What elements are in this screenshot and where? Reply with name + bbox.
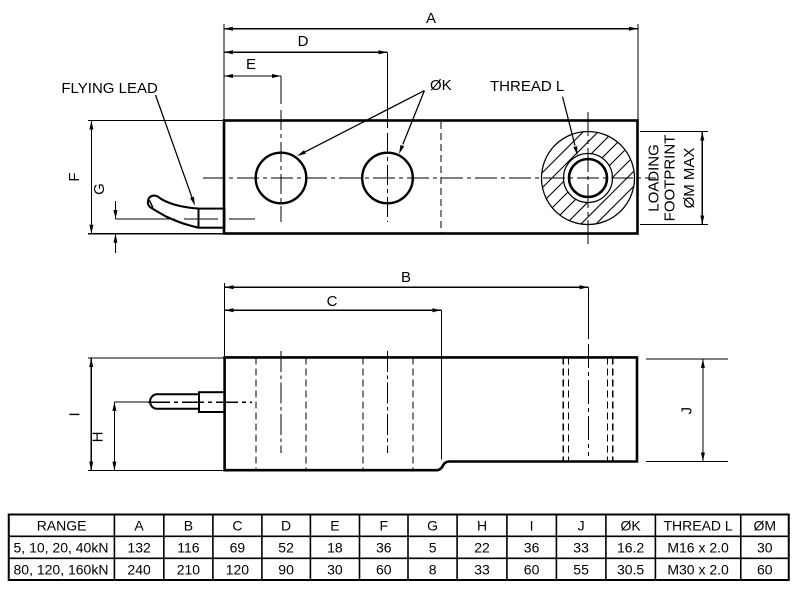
svg-text:116: 116: [177, 540, 200, 556]
svg-text:80, 120, 160kN: 80, 120, 160kN: [14, 562, 109, 578]
svg-text:36: 36: [376, 540, 392, 556]
svg-text:240: 240: [127, 562, 151, 578]
svg-text:J: J: [578, 518, 585, 534]
svg-text:FLYING LEAD: FLYING LEAD: [61, 80, 158, 97]
svg-text:30: 30: [327, 562, 343, 578]
svg-text:8: 8: [429, 562, 437, 578]
svg-text:FOOTPRINT: FOOTPRINT: [662, 135, 679, 222]
svg-text:36: 36: [524, 540, 540, 556]
svg-text:I: I: [530, 518, 534, 534]
svg-text:F: F: [380, 518, 389, 534]
svg-text:5: 5: [429, 540, 437, 556]
svg-text:60: 60: [524, 562, 540, 578]
svg-text:M16 x 2.0: M16 x 2.0: [667, 540, 729, 556]
svg-text:I: I: [67, 412, 84, 416]
svg-text:30: 30: [757, 540, 773, 556]
svg-text:C: C: [232, 518, 242, 534]
svg-text:A: A: [134, 518, 144, 534]
svg-text:33: 33: [573, 540, 589, 556]
svg-text:C: C: [327, 293, 338, 310]
svg-text:16.2: 16.2: [617, 540, 644, 556]
svg-text:H: H: [90, 432, 107, 443]
svg-text:60: 60: [376, 562, 392, 578]
svg-text:69: 69: [230, 540, 246, 556]
svg-text:90: 90: [278, 562, 294, 578]
svg-text:132: 132: [127, 540, 151, 556]
svg-text:55: 55: [573, 562, 589, 578]
svg-text:E: E: [246, 56, 256, 73]
svg-text:B: B: [184, 518, 193, 534]
svg-text:33: 33: [474, 562, 490, 578]
svg-text:LOADING: LOADING: [646, 144, 663, 212]
svg-text:A: A: [426, 10, 436, 27]
svg-text:ØK: ØK: [620, 518, 641, 534]
svg-text:D: D: [298, 33, 309, 50]
svg-text:THREAD L: THREAD L: [490, 78, 564, 95]
svg-text:5, 10, 20, 40kN: 5, 10, 20, 40kN: [14, 540, 109, 556]
svg-text:22: 22: [474, 540, 490, 556]
svg-text:120: 120: [226, 562, 250, 578]
svg-text:52: 52: [278, 540, 294, 556]
svg-text:E: E: [330, 518, 339, 534]
svg-text:60: 60: [757, 562, 773, 578]
svg-text:G: G: [91, 183, 108, 195]
svg-text:RANGE: RANGE: [37, 518, 87, 534]
svg-text:THREAD L: THREAD L: [663, 518, 732, 534]
svg-text:ØM: ØM: [754, 518, 777, 534]
svg-text:210: 210: [177, 562, 201, 578]
svg-text:M30 x 2.0: M30 x 2.0: [667, 562, 729, 578]
svg-text:F: F: [66, 172, 83, 181]
svg-text:D: D: [281, 518, 291, 534]
svg-text:H: H: [477, 518, 487, 534]
svg-text:J: J: [679, 407, 696, 415]
svg-text:30.5: 30.5: [617, 562, 644, 578]
svg-text:G: G: [427, 518, 438, 534]
svg-text:ØM MAX: ØM MAX: [681, 148, 698, 209]
svg-text:18: 18: [327, 540, 343, 556]
svg-text:ØK: ØK: [430, 77, 452, 94]
svg-text:B: B: [401, 269, 411, 286]
